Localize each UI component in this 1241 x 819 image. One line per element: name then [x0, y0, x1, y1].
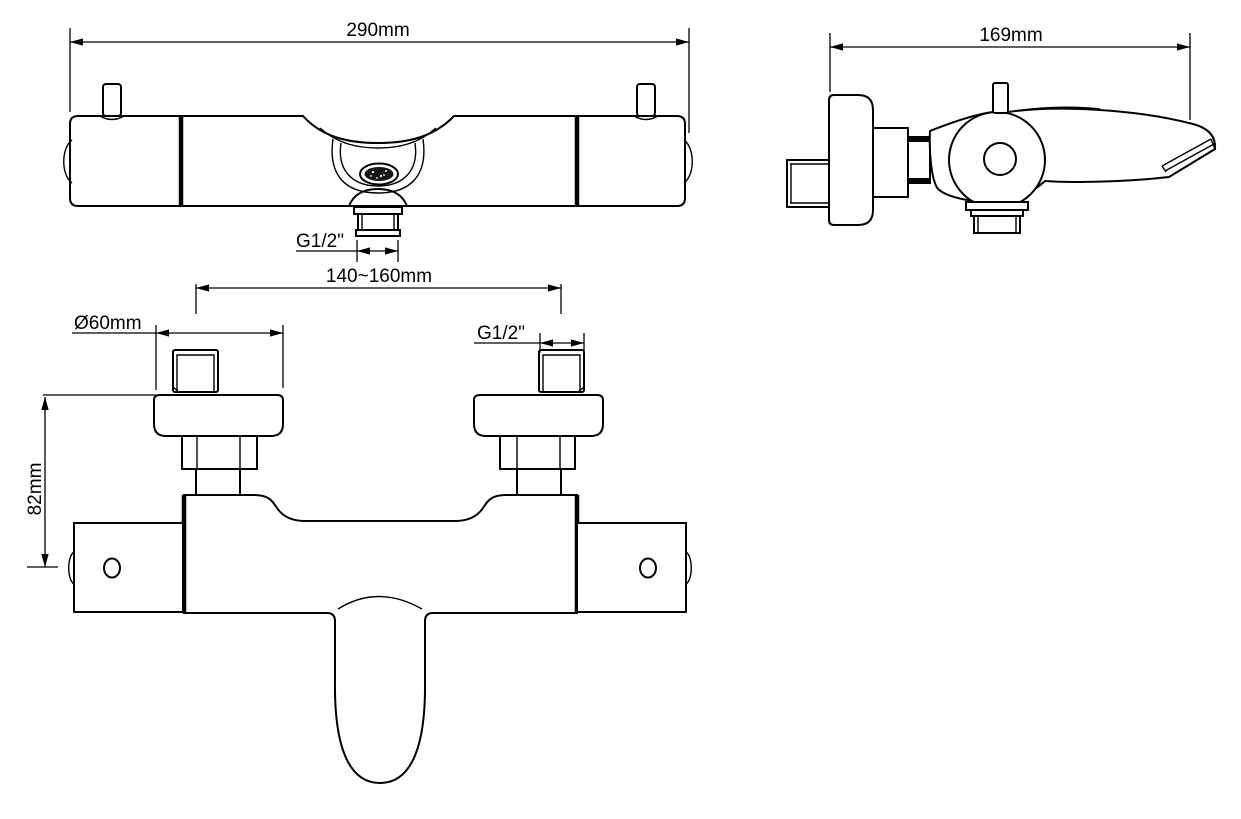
technical-drawing-page: 290mm G1/2"	[0, 0, 1241, 819]
side-view: 169mm	[787, 25, 1215, 233]
right-hex-nut	[500, 436, 575, 469]
plan-right-handle	[577, 523, 691, 612]
outlet-tip	[356, 230, 400, 236]
plan-left-inlet-assembly	[154, 350, 283, 495]
side-control-knob	[949, 112, 1045, 208]
left-hex-nut	[182, 436, 257, 469]
side-inlet-nipple	[787, 160, 829, 207]
outlet-thread-body	[358, 214, 398, 230]
front-left-knob	[103, 84, 121, 116]
dim-d60-label: Ø60mm	[74, 313, 142, 334]
plan-body	[184, 495, 577, 783]
dimension-inlet-thread: G1/2"	[474, 323, 584, 353]
front-view: 290mm G1/2"	[64, 20, 693, 262]
side-neck	[908, 137, 930, 183]
side-bottom-outlet	[966, 202, 1028, 233]
right-escutcheon	[474, 395, 603, 436]
plan-right-inlet-assembly	[474, 350, 603, 495]
plan-view: 140~160mm Ø60mm G1/2" 82mm	[25, 266, 691, 783]
left-neck	[196, 469, 240, 495]
right-inlet-thread	[539, 350, 584, 392]
dim-140-160-label: 140~160mm	[326, 266, 432, 287]
side-escutcheon	[829, 95, 873, 225]
dim-g12-plan-label: G1/2"	[477, 323, 525, 344]
left-inlet-thread	[173, 350, 218, 392]
left-escutcheon	[154, 395, 283, 436]
aerator-screen	[365, 167, 394, 181]
shower-mixer-drawing: 290mm G1/2"	[0, 0, 1241, 819]
right-neck	[517, 469, 561, 495]
dim-82mm-label: 82mm	[25, 463, 46, 516]
side-top-knob	[993, 83, 1008, 113]
dim-169mm-label: 169mm	[979, 25, 1042, 46]
dimension-overall-depth: 169mm	[830, 25, 1190, 120]
side-connector-block	[873, 128, 908, 197]
dimension-inlet-centers: 140~160mm	[196, 266, 561, 314]
outlet-collar	[354, 207, 402, 214]
plan-left-handle	[69, 523, 183, 612]
dim-290mm-label: 290mm	[346, 20, 409, 41]
front-right-knob	[637, 84, 655, 116]
dim-g12-front-label: G1/2"	[296, 231, 344, 252]
